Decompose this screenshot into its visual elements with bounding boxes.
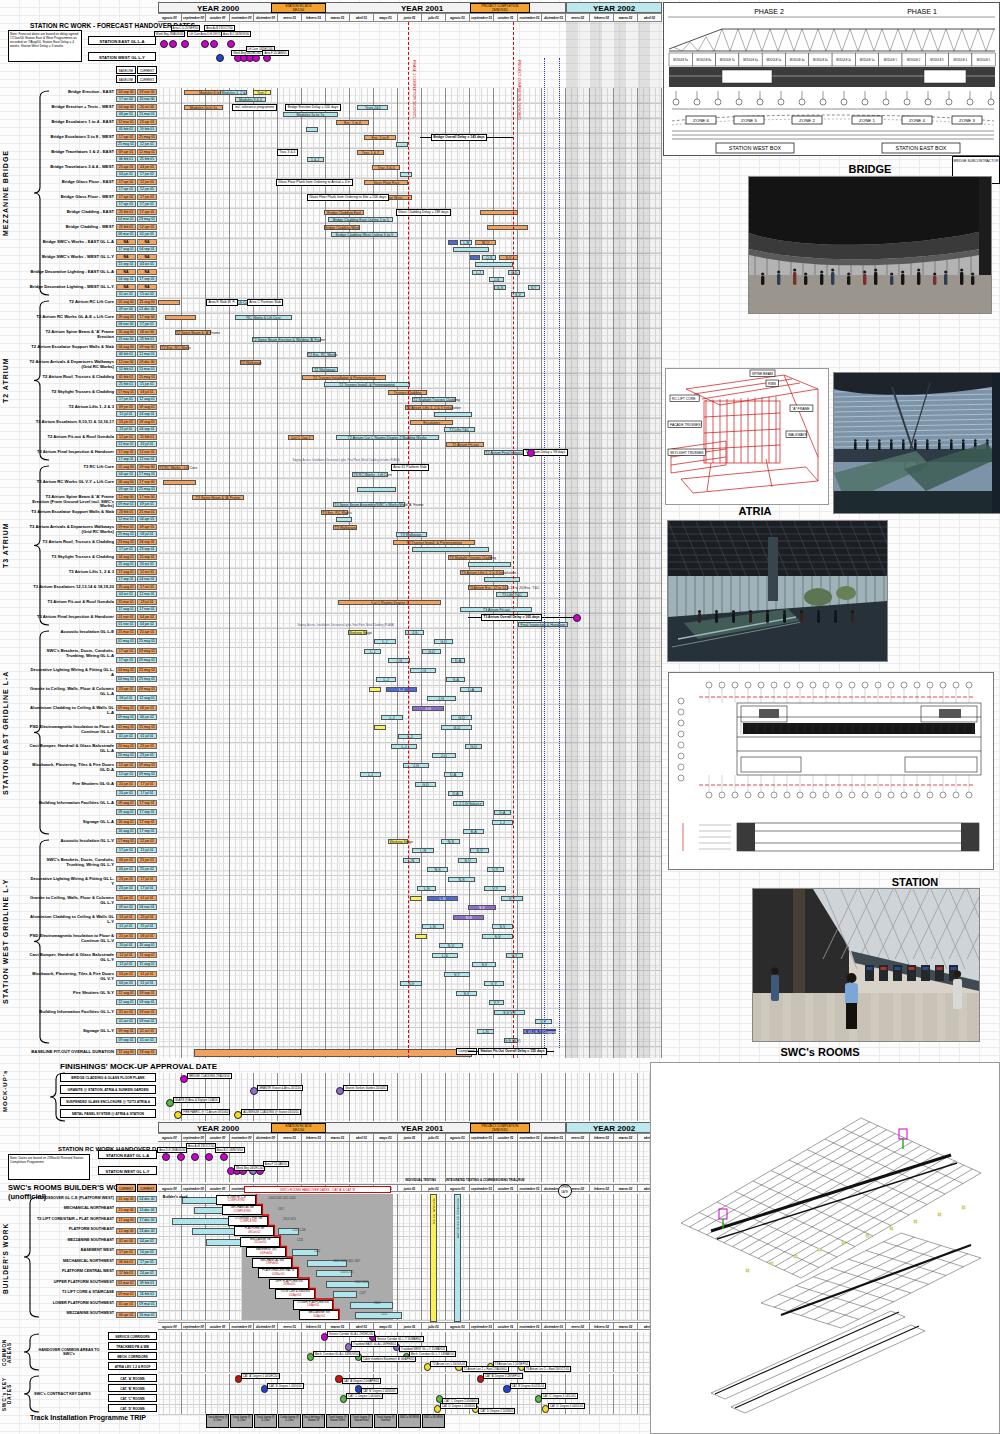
month-cell: julio 01 bbox=[422, 1184, 446, 1192]
task-label: Granite to Ceiling, Walls, Floor & Colum… bbox=[28, 894, 114, 913]
module-label: MODULE 2 bbox=[907, 58, 921, 62]
baseline-date-cell: 17 sep 00 bbox=[137, 479, 157, 485]
task-label: T3 Atrium Arrivals & Departures Walkways… bbox=[28, 523, 114, 538]
baseline-date-cell: 17 apr 01 bbox=[116, 134, 136, 140]
builder-task-label: UPPER PLATFORM SOUTHWEST bbox=[28, 1278, 114, 1289]
gantt-bar: N-S bbox=[441, 839, 460, 844]
builder-task-label: PLATFORM CENTRAL WEST bbox=[28, 1268, 114, 1279]
current-date-cell: 23 jun 01 bbox=[137, 752, 157, 758]
builder-date-cell: 09 mar 01 bbox=[116, 1291, 136, 1297]
gantt-bar bbox=[306, 127, 318, 132]
builder-handover-box: MECHANICAL NECOMPLETED bbox=[222, 1205, 262, 1215]
builder-bar bbox=[355, 1312, 403, 1319]
current-date-cell: 01 oct 01 bbox=[116, 291, 136, 297]
annotation-text: Staging, Access, Installation, Decorativ… bbox=[297, 624, 394, 627]
current-date-cell: 17 jun 01 bbox=[116, 546, 136, 552]
baseline-date-cell: 12 may 01 bbox=[137, 149, 157, 155]
room-codes: C003 C005 C021 C024 bbox=[268, 1197, 295, 1200]
month-cell: diciembre 00 bbox=[254, 1133, 278, 1142]
station-photo bbox=[667, 520, 888, 662]
circle bbox=[962, 439, 965, 442]
gantt-bar: T2 Atrium Lifts 1, 2 & 3 Installation bbox=[405, 405, 453, 410]
circle bbox=[988, 99, 994, 105]
gantt-bar: L-M bbox=[460, 240, 472, 245]
line bbox=[794, 29, 802, 51]
gantt-bar bbox=[415, 934, 427, 939]
current-date-cell: 01 dec 00 bbox=[137, 306, 157, 312]
task-label: Bridge Decorative Lighting - WEST GL L-Y bbox=[28, 283, 114, 298]
annotation-box: Area C Partition Slab bbox=[247, 299, 284, 306]
common-area-label: MECH. CORRIDORS bbox=[108, 1352, 157, 1360]
current-date-cell: 06 jul 01 bbox=[137, 531, 157, 537]
builder-date-cell: 01 apr 01 bbox=[116, 1301, 136, 1307]
circle bbox=[673, 99, 679, 105]
current-date-cell: 01 may 01 bbox=[116, 638, 136, 644]
gantt-bar: L-J bbox=[386, 687, 417, 692]
task-label: T2 Atrium Fit-out & Roof Gondola bbox=[28, 433, 114, 448]
zone-label: ZONE 4 bbox=[909, 118, 925, 123]
baseline-date-cell: 25 apr 01 bbox=[116, 164, 136, 170]
task-label: PSD Electromagnetic Insulation to Floor … bbox=[28, 932, 114, 951]
timeline-row bbox=[158, 1362, 662, 1373]
gantt-bar: T3 Skylight Trusses Cladding bbox=[448, 555, 491, 560]
baseline-date-cell: 01 oct 01 bbox=[116, 1009, 136, 1015]
baseline-date-cell: 15 aug 01 bbox=[137, 952, 157, 958]
month-cell: agosto 01 bbox=[446, 1184, 470, 1192]
gantt-bar: N-S bbox=[448, 877, 474, 882]
gantt-bar: Final Inspection & Handover bbox=[518, 622, 568, 627]
overall-duration-label: BASELINE FIT-OUT OVERALL DURATION bbox=[18, 1046, 114, 1058]
task-label: T2 Atrium Escalators 9,10,11 & 12,16,17 bbox=[28, 418, 114, 433]
circle bbox=[732, 682, 738, 688]
task-label: Aluminium Cladding to Ceiling & Walls GL… bbox=[28, 913, 114, 932]
baseline-date-cell: 20 jun 01 bbox=[116, 781, 136, 787]
milestone-dot bbox=[160, 40, 168, 48]
builder-date-cell: 24 jan 01 bbox=[137, 1270, 157, 1276]
circle bbox=[847, 973, 857, 983]
builder-handover-box: T3 Lift Core & Staircase02/Apr/01 bbox=[275, 1289, 315, 1299]
gantt-bar bbox=[453, 247, 489, 252]
milestone-dot bbox=[201, 40, 209, 48]
builder-date-cell: 17 jan 01 bbox=[137, 1259, 157, 1265]
circle bbox=[678, 731, 684, 737]
month-cell: noviembre 01 bbox=[518, 1184, 542, 1192]
builder-task-label: PLATFORM SOUTHEAST bbox=[28, 1226, 114, 1237]
current-date-cell: 04 jun 01 bbox=[116, 980, 136, 986]
baseline-date-cell: NA bbox=[116, 254, 136, 260]
baseline-date-cell: 06 jun 01 bbox=[116, 857, 136, 863]
circle bbox=[875, 792, 881, 798]
handover-date-box: Area B-C 06/NOV/00 bbox=[215, 1147, 245, 1153]
rect bbox=[804, 276, 807, 285]
current-date-cell: 12 jul 01 bbox=[116, 961, 136, 967]
current-date-cell: 12 jun 01 bbox=[137, 141, 157, 147]
month-cell: noviembre 01 bbox=[518, 13, 542, 22]
gantt-bar bbox=[487, 225, 528, 230]
current-date-cell: 09 oct 00 bbox=[116, 306, 136, 312]
gantt-bar: L-J bbox=[472, 270, 484, 275]
current-date-cell: 17 jun 01 bbox=[116, 847, 136, 853]
circle bbox=[927, 682, 933, 688]
task-label: PSD Electromagnetic Insulation to Floor … bbox=[28, 723, 114, 742]
baseline-date-cell: 17 jul 01 bbox=[137, 876, 157, 882]
month-cell: diciembre 01 bbox=[542, 1322, 566, 1330]
circle bbox=[777, 270, 780, 273]
gantt-bar: S-V bbox=[456, 991, 478, 996]
current-date-cell: 15 jul 01 bbox=[137, 847, 157, 853]
trip-box: SWC's WORKS bbox=[398, 1414, 421, 1428]
baseline-date-cell: 20 aug 00 bbox=[116, 329, 136, 335]
circle bbox=[810, 682, 816, 688]
circle bbox=[940, 792, 946, 798]
baseline-date-cell: 17 apr 01 bbox=[116, 648, 136, 654]
gantt-bar: T2 Spine Beam Erection & Welding 'A' Fra… bbox=[252, 337, 322, 342]
rect bbox=[971, 276, 974, 285]
key-date-date-box: CAT 'C' Degree 1 06/04/01 bbox=[346, 1393, 383, 1399]
milestone-dot bbox=[177, 1153, 185, 1161]
line bbox=[986, 29, 994, 51]
month-cell: enero 01 bbox=[278, 1133, 302, 1142]
month-cell: enero 02 bbox=[566, 13, 590, 22]
line bbox=[746, 29, 754, 51]
builder-date-cell: 10 dec 00 bbox=[137, 1207, 157, 1213]
line bbox=[962, 29, 970, 51]
circle bbox=[901, 270, 904, 273]
baseline-date-cell: 04 sep 00 bbox=[116, 104, 136, 110]
gantt-bar: S-V bbox=[492, 924, 514, 929]
gantt-bar: T3 Spine Beam & 'A' Frame bbox=[192, 495, 245, 500]
current-date-cell: 12 apr 01 bbox=[116, 771, 136, 777]
baseline-date-cell: 09 apr 01 bbox=[137, 524, 157, 530]
current-date-cell: 01 jun 01 bbox=[116, 733, 136, 739]
annotation-box: incl. tolerance programme bbox=[232, 104, 276, 111]
rect bbox=[938, 1213, 941, 1216]
current-date-cell: 04 oct 01 bbox=[137, 261, 157, 267]
line bbox=[906, 29, 914, 51]
month-cell: octubre 01 bbox=[494, 13, 518, 22]
line bbox=[954, 29, 962, 51]
circle bbox=[719, 682, 725, 688]
rect bbox=[914, 442, 917, 450]
gantt-bar: T2 Spine Beam & 'A' Frame bbox=[175, 330, 211, 335]
key-date-group-label: SWC's CONTRACT KEY DATES bbox=[34, 1374, 104, 1414]
gantt-bar: L-N bbox=[403, 858, 420, 863]
builder-date-cell: 24 dec 00 bbox=[137, 1228, 157, 1234]
builder-date-cell: 06 apr 01 bbox=[116, 1312, 136, 1318]
task-label: Bridge Glass Floor - WEST bbox=[28, 193, 114, 208]
month-cell: marzo 01 bbox=[326, 13, 350, 22]
module-label: MODULE 3 bbox=[930, 58, 944, 62]
gantt-bar: T3 Trusses Install. & Pretensioning bbox=[393, 540, 475, 545]
builder-date-cell: 12 sep 00 bbox=[116, 1228, 136, 1234]
circle bbox=[797, 792, 803, 798]
rect bbox=[715, 613, 718, 623]
month-cell: mayo 01 bbox=[374, 1133, 398, 1142]
baseline-date-cell: 04 jun 01 bbox=[137, 164, 157, 170]
line bbox=[796, 1286, 876, 1311]
isometric-station-drawing bbox=[650, 1062, 1000, 1434]
key-date-label: CAT. 'A' ROOMS bbox=[108, 1374, 157, 1382]
rect bbox=[820, 274, 823, 285]
baseline-date-cell: 25 aug 00 bbox=[137, 299, 157, 305]
line bbox=[898, 29, 906, 51]
gantt-bar bbox=[374, 725, 386, 730]
gantt-bar: Cat C Day 1 bbox=[288, 435, 314, 440]
current-date-cell: 25 may 01 bbox=[116, 531, 136, 537]
baseline-date-cell: 17 apr 01 bbox=[116, 194, 136, 200]
rect bbox=[746, 1269, 749, 1272]
line bbox=[978, 29, 986, 51]
circle bbox=[784, 682, 790, 688]
month-cell: diciembre 01 bbox=[542, 13, 566, 22]
baseline-date-cell: 23 jul 01 bbox=[137, 599, 157, 605]
month-cell: agosto 01 bbox=[446, 1133, 470, 1142]
gantt-bar: T2 Skylight Trusses Cladding bbox=[412, 397, 455, 402]
rect bbox=[902, 442, 905, 450]
rect bbox=[777, 274, 780, 285]
baseline-date-cell: 09 may 01 bbox=[137, 762, 157, 768]
baseline-date-cell: 09 aug 00 bbox=[116, 314, 136, 320]
month-cell: noviembre 00 bbox=[230, 13, 254, 22]
blue-dotted-line bbox=[559, 58, 560, 1048]
common-area-date-box: Mech. Corridors GL A-L 24/NOV/00 bbox=[313, 1351, 361, 1357]
current-date-cell: 04 sep 01 bbox=[137, 246, 157, 252]
note-box-2: Note: Dates are based on 23Nov00 Revised… bbox=[8, 1154, 90, 1180]
current-date-cell: 06 feb 01 bbox=[116, 156, 136, 162]
task-label: T3 RC Lift Core bbox=[28, 463, 114, 478]
mockup-date-box: FIRE FABRIC @ T2 Atrium 09/10/00 bbox=[181, 1109, 230, 1115]
month-cell: agosto 00 bbox=[158, 1184, 182, 1192]
current-date-cell: 17 sep 01 bbox=[116, 576, 136, 582]
milestone-header-box: STATION RC BOXDEC/00 bbox=[271, 3, 326, 13]
rect bbox=[793, 272, 796, 285]
circle bbox=[938, 439, 941, 442]
section-label: MEZZANINE BRIDGE bbox=[2, 88, 16, 298]
rect bbox=[938, 442, 941, 450]
task-label: T3 Atrium Final Inspection & Handover bbox=[28, 613, 114, 628]
month-cell: febrero 02 bbox=[590, 1322, 614, 1330]
gantt-bar: T3 Lifts T&C bbox=[496, 592, 527, 597]
task-label: Signage GL L-A bbox=[28, 818, 114, 837]
baseline-date-cell: 20 may 01 bbox=[116, 743, 136, 749]
trip-box: Cable laying @ X-Over bbox=[278, 1414, 301, 1428]
circle bbox=[901, 682, 907, 688]
mockup-date-box: BRIDGE CLADDING 29/AUG/00 bbox=[187, 1073, 232, 1079]
current-date-cell: 25 jul 01 bbox=[116, 426, 136, 432]
current-date-cell: 25 feb 01 bbox=[137, 156, 157, 162]
month-cell: noviembre 00 bbox=[230, 1133, 254, 1142]
line bbox=[699, 1213, 819, 1268]
current-date-cell: 20 jul 01 bbox=[116, 942, 136, 948]
annotation-box: Area E Slab W. F. bbox=[206, 299, 238, 306]
gantt-bar: V-Y bbox=[489, 1000, 503, 1005]
builder-handover-box: MEZZANINE SW30/Apr/01 bbox=[299, 1310, 339, 1320]
baseline-date-cell: 25 may 01 bbox=[137, 667, 157, 673]
baseline-date-cell: 15 mar 01 bbox=[116, 599, 136, 605]
task-label: Building Information Facilities GL L-A bbox=[28, 799, 114, 818]
current-date-cell: 01 jul 01 bbox=[137, 733, 157, 739]
task-label: Building Information Facilities GL L-Y bbox=[28, 1008, 114, 1027]
line bbox=[858, 29, 866, 51]
builders-work-note: Builder's work bbox=[163, 1195, 188, 1199]
rect bbox=[854, 442, 857, 450]
annotation-box: Trav. 3 & 4 bbox=[277, 149, 298, 156]
task-label: T2 Atrium Escalator Support Walls & Slab bbox=[28, 343, 114, 358]
current-date-cell: 25 aug 01 bbox=[116, 561, 136, 567]
circle bbox=[849, 792, 855, 798]
gantt-bar: S-V bbox=[458, 858, 477, 863]
current-date-cell: 12 aug 01 bbox=[137, 695, 157, 701]
trip-box: Track laying @ X-Over bbox=[254, 1414, 277, 1428]
baseline-date-cell: 23 may 01 bbox=[116, 539, 136, 545]
month-cell: abril 01 bbox=[350, 1133, 374, 1142]
mockup-date-box: GRANITE Station & Atria 24/11/00 bbox=[257, 1085, 303, 1091]
current-date-cell: 20 oct 01 bbox=[137, 561, 157, 567]
gantt-bar: Esc. 1 to 4 bbox=[336, 120, 370, 125]
baseline-date-cell: 15 may 01 bbox=[137, 374, 157, 380]
circle bbox=[800, 610, 803, 613]
common-area-date-box: Service Corridor GL A-L 29/DEC/00 bbox=[327, 1331, 375, 1337]
gantt-bar: T2 Lifts T&C bbox=[444, 427, 475, 432]
task-label: Decorative Lighting Wiring & Fitting GL … bbox=[28, 666, 114, 685]
task-label: Blockwork, Plastering, Tiles & Fire Door… bbox=[28, 970, 114, 989]
task-label: Bridge Travelators 3 & 4 - WEST bbox=[28, 163, 114, 178]
baseline-date-cell: 04 aug 01 bbox=[116, 554, 136, 560]
month-cell: noviembre 00 bbox=[230, 1322, 254, 1330]
gantt-bar: J-G bbox=[432, 753, 456, 758]
rect bbox=[937, 967, 943, 970]
current-date-cell: 12 nov 01 bbox=[137, 456, 157, 462]
timeline-row bbox=[158, 1085, 662, 1097]
baseline-date-cell: 09 jun 01 bbox=[116, 404, 136, 410]
circle bbox=[799, 99, 805, 105]
task-label: Bridge Erection + Tests - WEST bbox=[28, 103, 114, 118]
gantt-bar: Modules 1a to 7a bbox=[283, 112, 338, 117]
atrium-photo bbox=[833, 372, 1000, 514]
gantt-bar: L-J bbox=[391, 744, 417, 749]
current-date-cell: 25 may 01 bbox=[137, 676, 157, 682]
baseline-date-cell: 12 jun 01 bbox=[137, 179, 157, 185]
builder-date-cell: 06 feb 01 bbox=[116, 1259, 136, 1265]
circle bbox=[926, 439, 929, 442]
current-date-cell: 17 apr 01 bbox=[116, 201, 136, 207]
station-west-label: STATION WEST GL L-Y bbox=[88, 52, 156, 61]
current-date-cell: 25 nov 00 bbox=[116, 336, 136, 342]
builder-task-label: MEZZANINE SOUTHWEST bbox=[28, 1310, 114, 1321]
builder-date-cell: 17 dec 00 bbox=[137, 1217, 157, 1223]
builder-handover-box: X-Over GL C-ECOMPLETED bbox=[216, 1195, 256, 1205]
current-date-cell: 06 sep 01 bbox=[137, 426, 157, 432]
milestone-dot bbox=[210, 40, 218, 48]
rect bbox=[719, 1209, 727, 1219]
key-date-date-box: CAT 'D' Degree 1 01/08/01 bbox=[440, 1403, 477, 1409]
task-label: Decorative Lighting Wiring & Fitting GL … bbox=[28, 875, 114, 894]
note-box: Note: Forecast dates are based on delay … bbox=[8, 30, 82, 62]
gantt-bar: S-V V-Y bbox=[494, 1010, 525, 1015]
circle bbox=[678, 709, 684, 715]
handover-date-box: Area F 15/JAN/01 bbox=[262, 50, 288, 56]
circle bbox=[772, 968, 779, 975]
gantt-bar: D-A bbox=[448, 791, 462, 796]
line bbox=[706, 37, 714, 51]
section-label: STATION WEST GRIDLINE L-Y bbox=[2, 837, 16, 1046]
rect bbox=[761, 993, 769, 1041]
key-date-date-box: CAT 'A' Degree 2 06/APR/01 bbox=[342, 1378, 382, 1384]
month-cell: abril 01 bbox=[350, 1322, 374, 1330]
circle bbox=[784, 792, 790, 798]
rect bbox=[951, 967, 957, 970]
baseline-date-cell: 25 mar 01 bbox=[116, 629, 136, 635]
baseline-date-cell: 01 jul 01 bbox=[137, 895, 157, 901]
baseline-date-cell: 01 oct 01 bbox=[137, 1028, 157, 1034]
station-west-label-2: STATION WEST GL L-Y bbox=[98, 1166, 157, 1175]
baseline-date-cell: 23 feb 01 bbox=[116, 509, 136, 515]
gantt-bar: S-V bbox=[400, 981, 422, 986]
line bbox=[930, 29, 938, 51]
current-date-cell: 01 nov 01 bbox=[116, 621, 136, 627]
gantt-bar: D-A bbox=[460, 687, 482, 692]
baseline-date-cell: 25 aug 01 bbox=[116, 584, 136, 590]
current-date-cell: 06 jun 01 bbox=[137, 714, 157, 720]
line bbox=[866, 29, 874, 51]
common-area-label: TRACKBED FB & WB bbox=[108, 1342, 157, 1350]
annotation-box: Glass Floor Plank from Ordering to Arriv… bbox=[276, 179, 353, 186]
current-date-cell: 09 apr 01 bbox=[116, 486, 136, 492]
key-date-date-box: CAT 'B' Degree 3 02/11/01 bbox=[510, 1383, 547, 1389]
month-cell: febrero 01 bbox=[302, 1322, 326, 1330]
gantt-bar: J-G bbox=[410, 668, 436, 673]
gantt-bar: V-Y bbox=[528, 285, 540, 290]
builder-date-cell: 04 jan 01 bbox=[137, 1238, 157, 1244]
builder-task-label: T2 LIFT CORE/STAIR + PLAT. NORTHEAST bbox=[28, 1215, 114, 1226]
current-date-cell: 25 feb 01 bbox=[116, 381, 136, 387]
task-label: Acoustic Insulation GL L-E bbox=[28, 628, 114, 647]
baseline-date-cell: 17 may 01 bbox=[116, 838, 136, 844]
key-date-date-box: CAT 'B' Degree 1 02/01/01 bbox=[267, 1383, 304, 1389]
circle bbox=[904, 99, 910, 105]
atria-callout: FACADE TRUSSES bbox=[670, 423, 701, 427]
gantt-bar: Modules 6a to 1a bbox=[184, 105, 222, 110]
circle bbox=[967, 99, 973, 105]
line bbox=[874, 29, 882, 51]
baseline-date-cell: 12 apr 01 bbox=[137, 224, 157, 230]
month-cell: enero 01 bbox=[278, 13, 302, 22]
line bbox=[762, 29, 770, 51]
trip-box: Track laying @ Overrun bbox=[374, 1414, 397, 1428]
current-date-cell: 25 jul 01 bbox=[137, 923, 157, 929]
baseline-date-cell: 15 may 01 bbox=[137, 724, 157, 730]
rect bbox=[953, 979, 962, 1009]
path bbox=[717, 1163, 957, 1239]
gantt-bar: Modules 3 & 4 bbox=[235, 97, 266, 102]
task-label: Bridge Erection - EAST bbox=[28, 88, 114, 103]
current-date-cell: 04 apr 01 bbox=[137, 516, 157, 522]
gantt-bar: L-N bbox=[417, 886, 436, 891]
circle bbox=[878, 439, 881, 442]
task-label: T2 Atrium Lifts 1, 2 & 3 bbox=[28, 403, 114, 418]
task-label: Bridge Escalators 1 to 4 - EAST bbox=[28, 118, 114, 133]
current-date-cell: 17 aug 01 bbox=[116, 246, 136, 252]
task-label: T3 Atrium Spine Beam & 'A' Frame Erectio… bbox=[28, 493, 114, 508]
month-cell: mayo 01 bbox=[374, 1322, 398, 1330]
gantt-bar: D-A bbox=[494, 810, 511, 815]
baseline-date-cell: 17 apr 01 bbox=[116, 179, 136, 185]
builder-handover-box: MECHANICAL NW19/Feb/01 bbox=[252, 1258, 292, 1268]
current-date-cell: 01 oct 01 bbox=[116, 1018, 136, 1024]
month-cell: septiembre 00 bbox=[182, 1184, 206, 1192]
room-codes: C211 bbox=[297, 1239, 303, 1242]
gantt-bar: G-D bbox=[465, 744, 482, 749]
